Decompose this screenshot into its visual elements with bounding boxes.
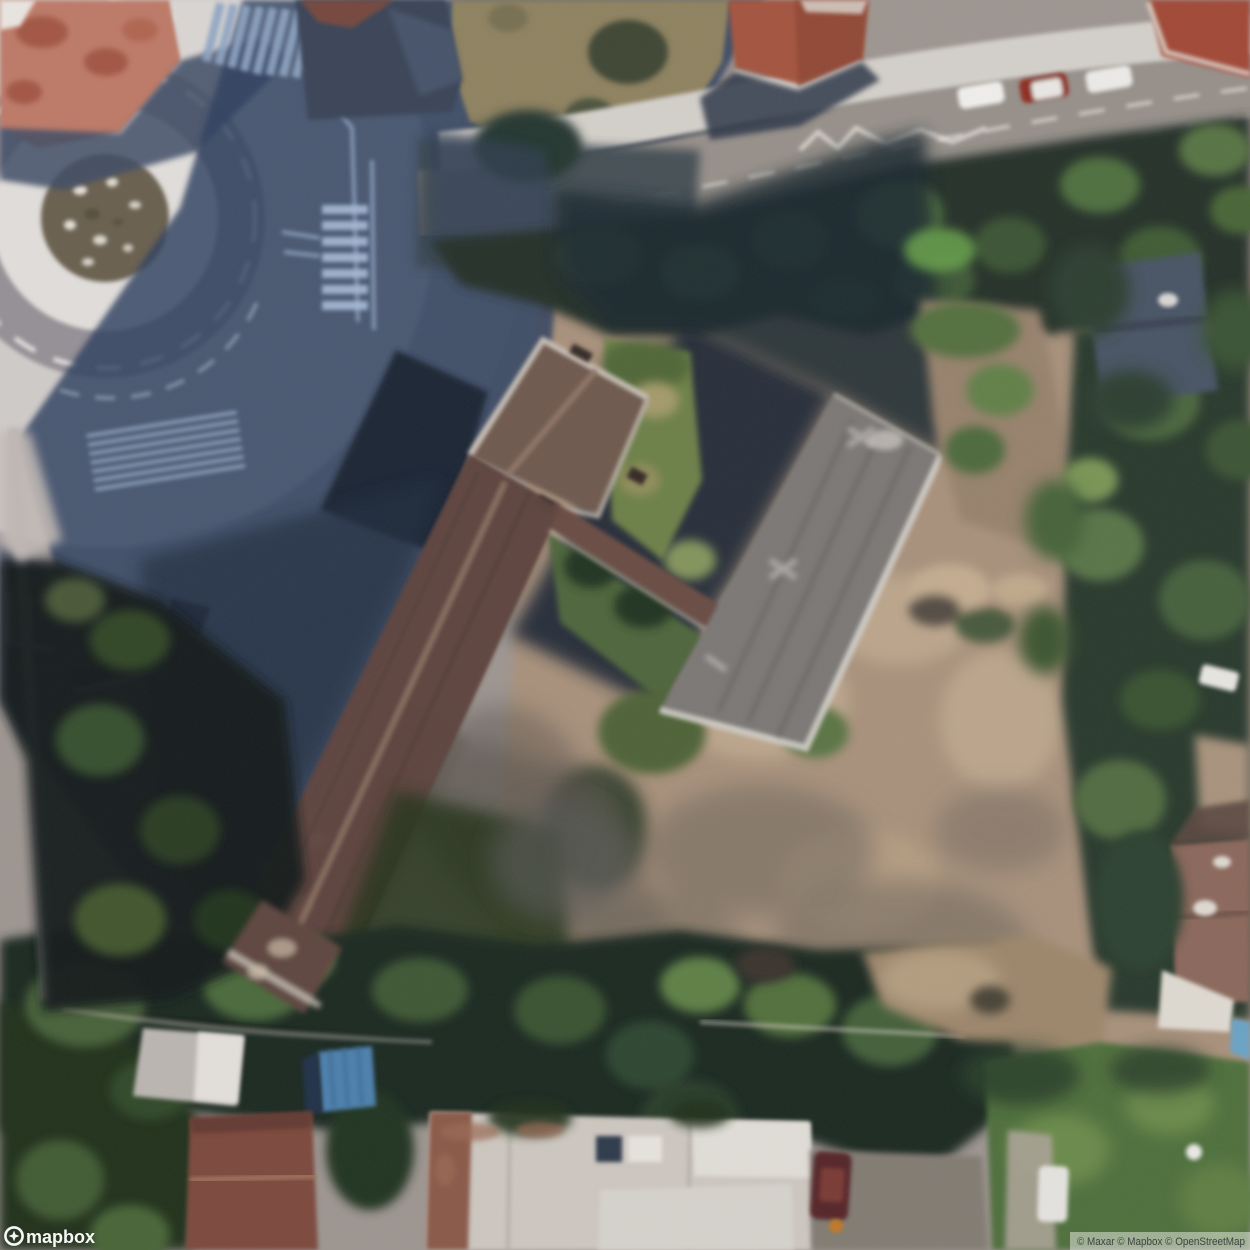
svg-text:© Maxar © Mapbox © OpenStreetM: © Maxar © Mapbox © OpenStreetMap bbox=[1077, 1236, 1245, 1248]
svg-text:mapbox: mapbox bbox=[26, 1227, 95, 1247]
